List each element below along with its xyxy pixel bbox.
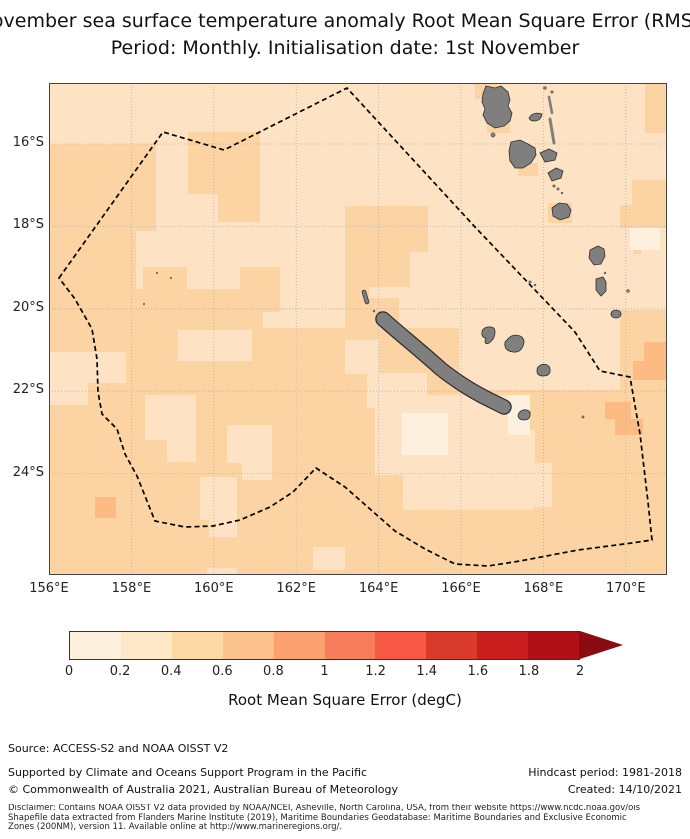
colorbar (69, 631, 623, 660)
lon-tick-label: 166°E (431, 581, 491, 596)
islet-dot (373, 310, 375, 312)
rmse-field-patch (402, 413, 448, 455)
island-mare (537, 364, 550, 376)
islet-dot (553, 185, 556, 188)
colorbar-segment (426, 632, 477, 659)
lon-tick-label: 164°E (349, 581, 409, 596)
rmse-field-patch (630, 228, 660, 250)
colorbar-tick-label: 0.4 (149, 664, 193, 679)
colorbar-segment (325, 632, 376, 659)
rmse-field-patch (645, 83, 667, 133)
islet-dot (582, 416, 584, 418)
colorbar-tick-label: 0.2 (98, 664, 142, 679)
rmse-field-patch (188, 132, 260, 194)
islet-dot (156, 272, 158, 274)
islet-dot (557, 188, 559, 190)
colorbar-tick-label: 1.6 (456, 664, 500, 679)
colorbar-tick-label: 1.8 (507, 664, 551, 679)
colorbar-segment (172, 632, 223, 659)
rmse-field-patch (345, 252, 369, 328)
island-espiritu-santo (482, 86, 512, 128)
rmse-field-patch (458, 430, 535, 475)
figure-subtitle: Period: Monthly. Initialisation date: 1s… (111, 37, 580, 59)
rmse-field-patch (620, 205, 667, 228)
hindcast-period-text: Hindcast period: 1981-2018 (528, 766, 682, 779)
rmse-field-patch (313, 547, 345, 570)
rmse-field-patch (207, 568, 237, 575)
map-svg (49, 83, 667, 575)
lon-tick-label: 158°E (101, 581, 161, 596)
lat-tick-label: 22°S (4, 382, 44, 397)
colorbar-tick-label: 2 (558, 664, 602, 679)
colorbar-segment (375, 632, 426, 659)
colorbar-segment (274, 632, 325, 659)
rmse-field-patch (95, 497, 116, 518)
colorbar-segment (528, 632, 579, 659)
lat-tick-label: 16°S (4, 135, 44, 150)
figure: November sea surface temperature anomaly… (0, 0, 690, 839)
rmse-field-patch (632, 180, 667, 205)
rmse-field-patch (528, 463, 552, 507)
rmse-field-patch (345, 206, 428, 252)
lat-tick-label: 18°S (4, 217, 44, 232)
colorbar-bar (69, 631, 580, 660)
rmse-field-patch (605, 402, 631, 419)
lon-tick-label: 156°E (19, 581, 79, 596)
colorbar-segment (477, 632, 528, 659)
rmse-field-patch (633, 361, 667, 380)
lon-tick-label: 162°E (266, 581, 326, 596)
rmse-field-patch (143, 267, 187, 289)
map-canvas (49, 83, 667, 575)
island-efate (552, 203, 571, 220)
islet-dot (604, 272, 606, 274)
disclaimer-line-3: Zones (200NM), version 11. Available onl… (8, 823, 690, 833)
islet-dot (143, 303, 145, 305)
colorbar-segment (121, 632, 172, 659)
colorbar-tick-label: 0 (47, 664, 91, 679)
lon-tick-label: 160°E (184, 581, 244, 596)
lat-tick-label: 20°S (4, 300, 44, 315)
colorbar-tick-label: 1.2 (354, 664, 398, 679)
disclaimer: Disclaimer: Contains NOAA OISST V2 data … (8, 804, 690, 833)
supported-text: Supported by Climate and Oceans Support … (8, 766, 367, 779)
rmse-field-patch (242, 463, 272, 480)
islet-dot (561, 192, 563, 194)
islet-dot (534, 284, 536, 286)
island-aneityum (611, 310, 621, 318)
lat-tick-label: 24°S (4, 465, 44, 480)
islet-dot (544, 87, 547, 90)
figure-title: November sea surface temperature anomaly… (0, 10, 690, 32)
colorbar-label: Root Mean Square Error (degC) (0, 691, 690, 709)
colorbar-tick-label: 0.8 (251, 664, 295, 679)
rmse-field-patch (365, 252, 410, 287)
rmse-field-patch (200, 477, 237, 520)
rmse-field-patch (345, 340, 379, 374)
islet-dot (377, 313, 379, 315)
colorbar-tick-label: 1.4 (405, 664, 449, 679)
rmse-field-patch (403, 475, 533, 510)
rmse-field-patch (167, 440, 196, 462)
rmse-field-patch (145, 395, 196, 440)
islet-dot (491, 133, 495, 137)
islet-dot (551, 91, 554, 94)
copyright-text: © Commonwealth of Australia 2021, Austra… (8, 783, 398, 796)
source-text: Source: ACCESS-S2 and NOAA OISST V2 (8, 742, 228, 755)
created-date-text: Created: 14/10/2021 (568, 783, 682, 796)
islet-dot (170, 277, 172, 279)
colorbar-segment (70, 632, 121, 659)
lon-tick-label: 168°E (513, 581, 573, 596)
islet-dot (627, 290, 630, 293)
colorbar-tick-label: 1 (303, 664, 347, 679)
rmse-field-patch (615, 419, 643, 435)
islet-dot (529, 281, 531, 283)
colorbar-segment (223, 632, 274, 659)
rmse-field-patch (218, 194, 260, 222)
rmse-field-patch (209, 520, 237, 537)
rmse-field-patch (178, 330, 252, 361)
rmse-field-patch (644, 342, 667, 361)
colorbar-extend-arrow (580, 631, 623, 659)
rmse-field-patch (49, 352, 88, 405)
colorbar-tick-label: 0.6 (200, 664, 244, 679)
rmse-field-patch (227, 425, 272, 463)
lon-tick-label: 170°E (596, 581, 656, 596)
